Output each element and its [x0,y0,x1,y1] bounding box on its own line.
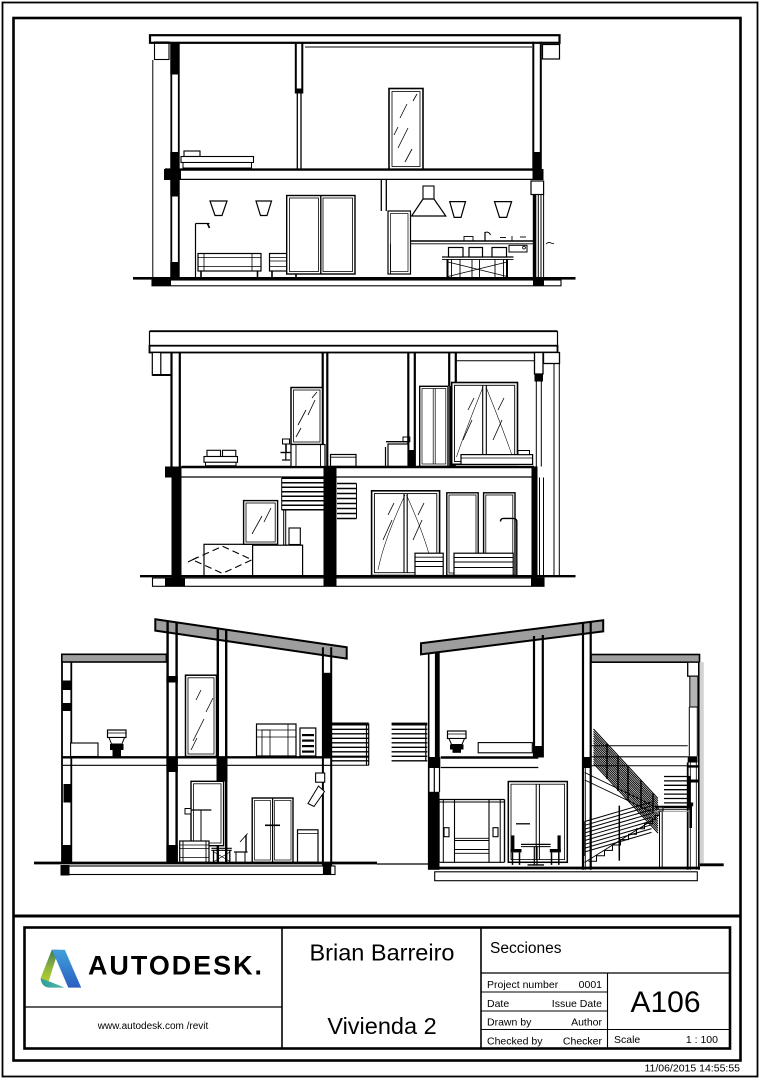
svg-text:Vivienda 2: Vivienda 2 [327,1013,436,1039]
svg-text:AUTODESK.: AUTODESK. [88,951,264,981]
svg-text:Date: Date [487,998,509,1010]
svg-text:www.autodesk.com /revit: www.autodesk.com /revit [97,1021,209,1032]
svg-text:0001: 0001 [579,979,603,991]
svg-text:11/06/2015 14:55:55: 11/06/2015 14:55:55 [644,1063,740,1075]
svg-text:Scale: Scale [614,1034,640,1046]
svg-text:A106: A106 [630,986,700,1019]
svg-text:Author: Author [571,1017,602,1029]
svg-text:Brian Barreiro: Brian Barreiro [310,940,455,966]
svg-text:Checked by: Checked by [487,1036,543,1048]
svg-text:Project number: Project number [487,979,559,991]
svg-text:Drawn by: Drawn by [487,1017,532,1029]
svg-text:Secciones: Secciones [490,940,562,957]
svg-text:Issue Date: Issue Date [552,998,602,1010]
svg-text:Checker: Checker [563,1036,603,1048]
svg-text:1 : 100: 1 : 100 [686,1034,718,1046]
